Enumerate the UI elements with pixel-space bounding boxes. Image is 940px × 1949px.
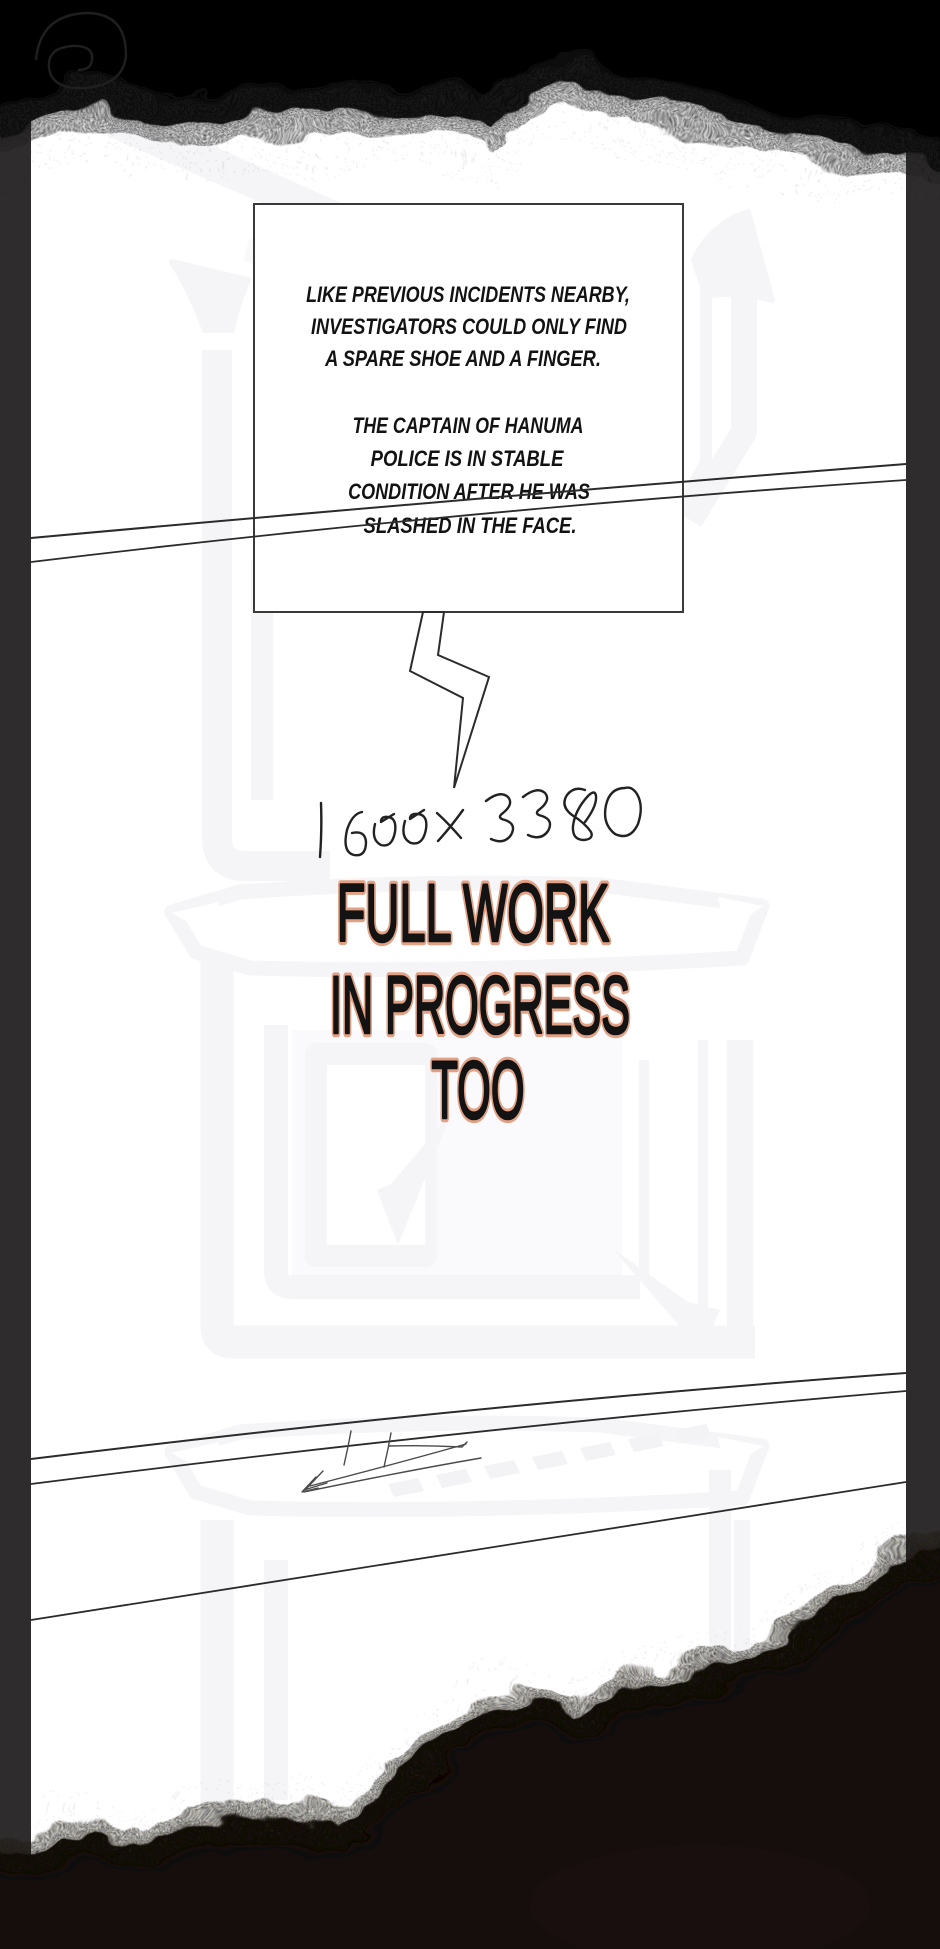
svg-text:INVESTIGATORS COULD ONLY FIND: INVESTIGATORS COULD ONLY FIND (311, 315, 627, 339)
svg-text:FULL WORK: FULL WORK (337, 867, 610, 959)
svg-text:TOO: TOO (432, 1044, 525, 1135)
svg-text:LIKE PREVIOUS INCIDENTS NEARBY: LIKE PREVIOUS INCIDENTS NEARBY, (306, 283, 630, 307)
svg-text:THE CAPTAIN OF HANUMA: THE CAPTAIN OF HANUMA (353, 414, 584, 438)
svg-text:SLASHED IN THE FACE.: SLASHED IN THE FACE. (364, 515, 577, 539)
svg-text:POLICE IS IN STABLE: POLICE IS IN STABLE (371, 448, 565, 472)
svg-text:A SPARE SHOE AND A FINGER.: A SPARE SHOE AND A FINGER. (324, 348, 601, 372)
svg-text:IN PROGRESS: IN PROGRESS (330, 959, 630, 1050)
